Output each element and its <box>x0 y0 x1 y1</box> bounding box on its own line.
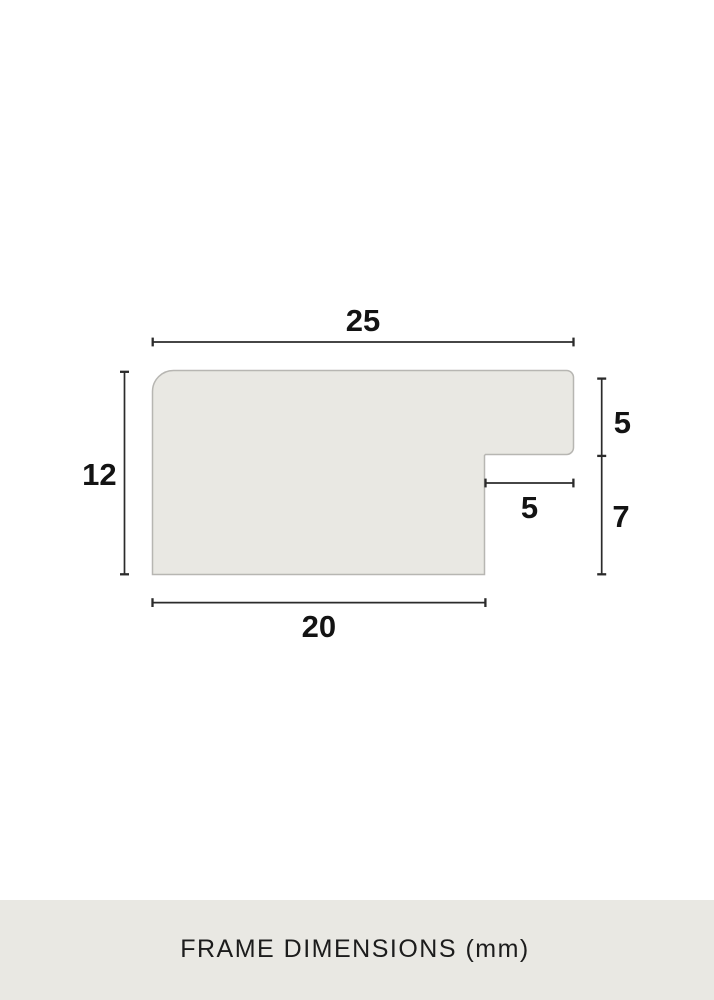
svg-text:7: 7 <box>612 499 629 534</box>
svg-text:5: 5 <box>521 490 538 525</box>
svg-text:5: 5 <box>614 405 631 440</box>
svg-text:FRAME DIMENSIONS (mm): FRAME DIMENSIONS (mm) <box>180 935 530 963</box>
svg-text:20: 20 <box>302 609 336 644</box>
svg-text:25: 25 <box>346 303 380 338</box>
svg-text:12: 12 <box>82 457 116 492</box>
